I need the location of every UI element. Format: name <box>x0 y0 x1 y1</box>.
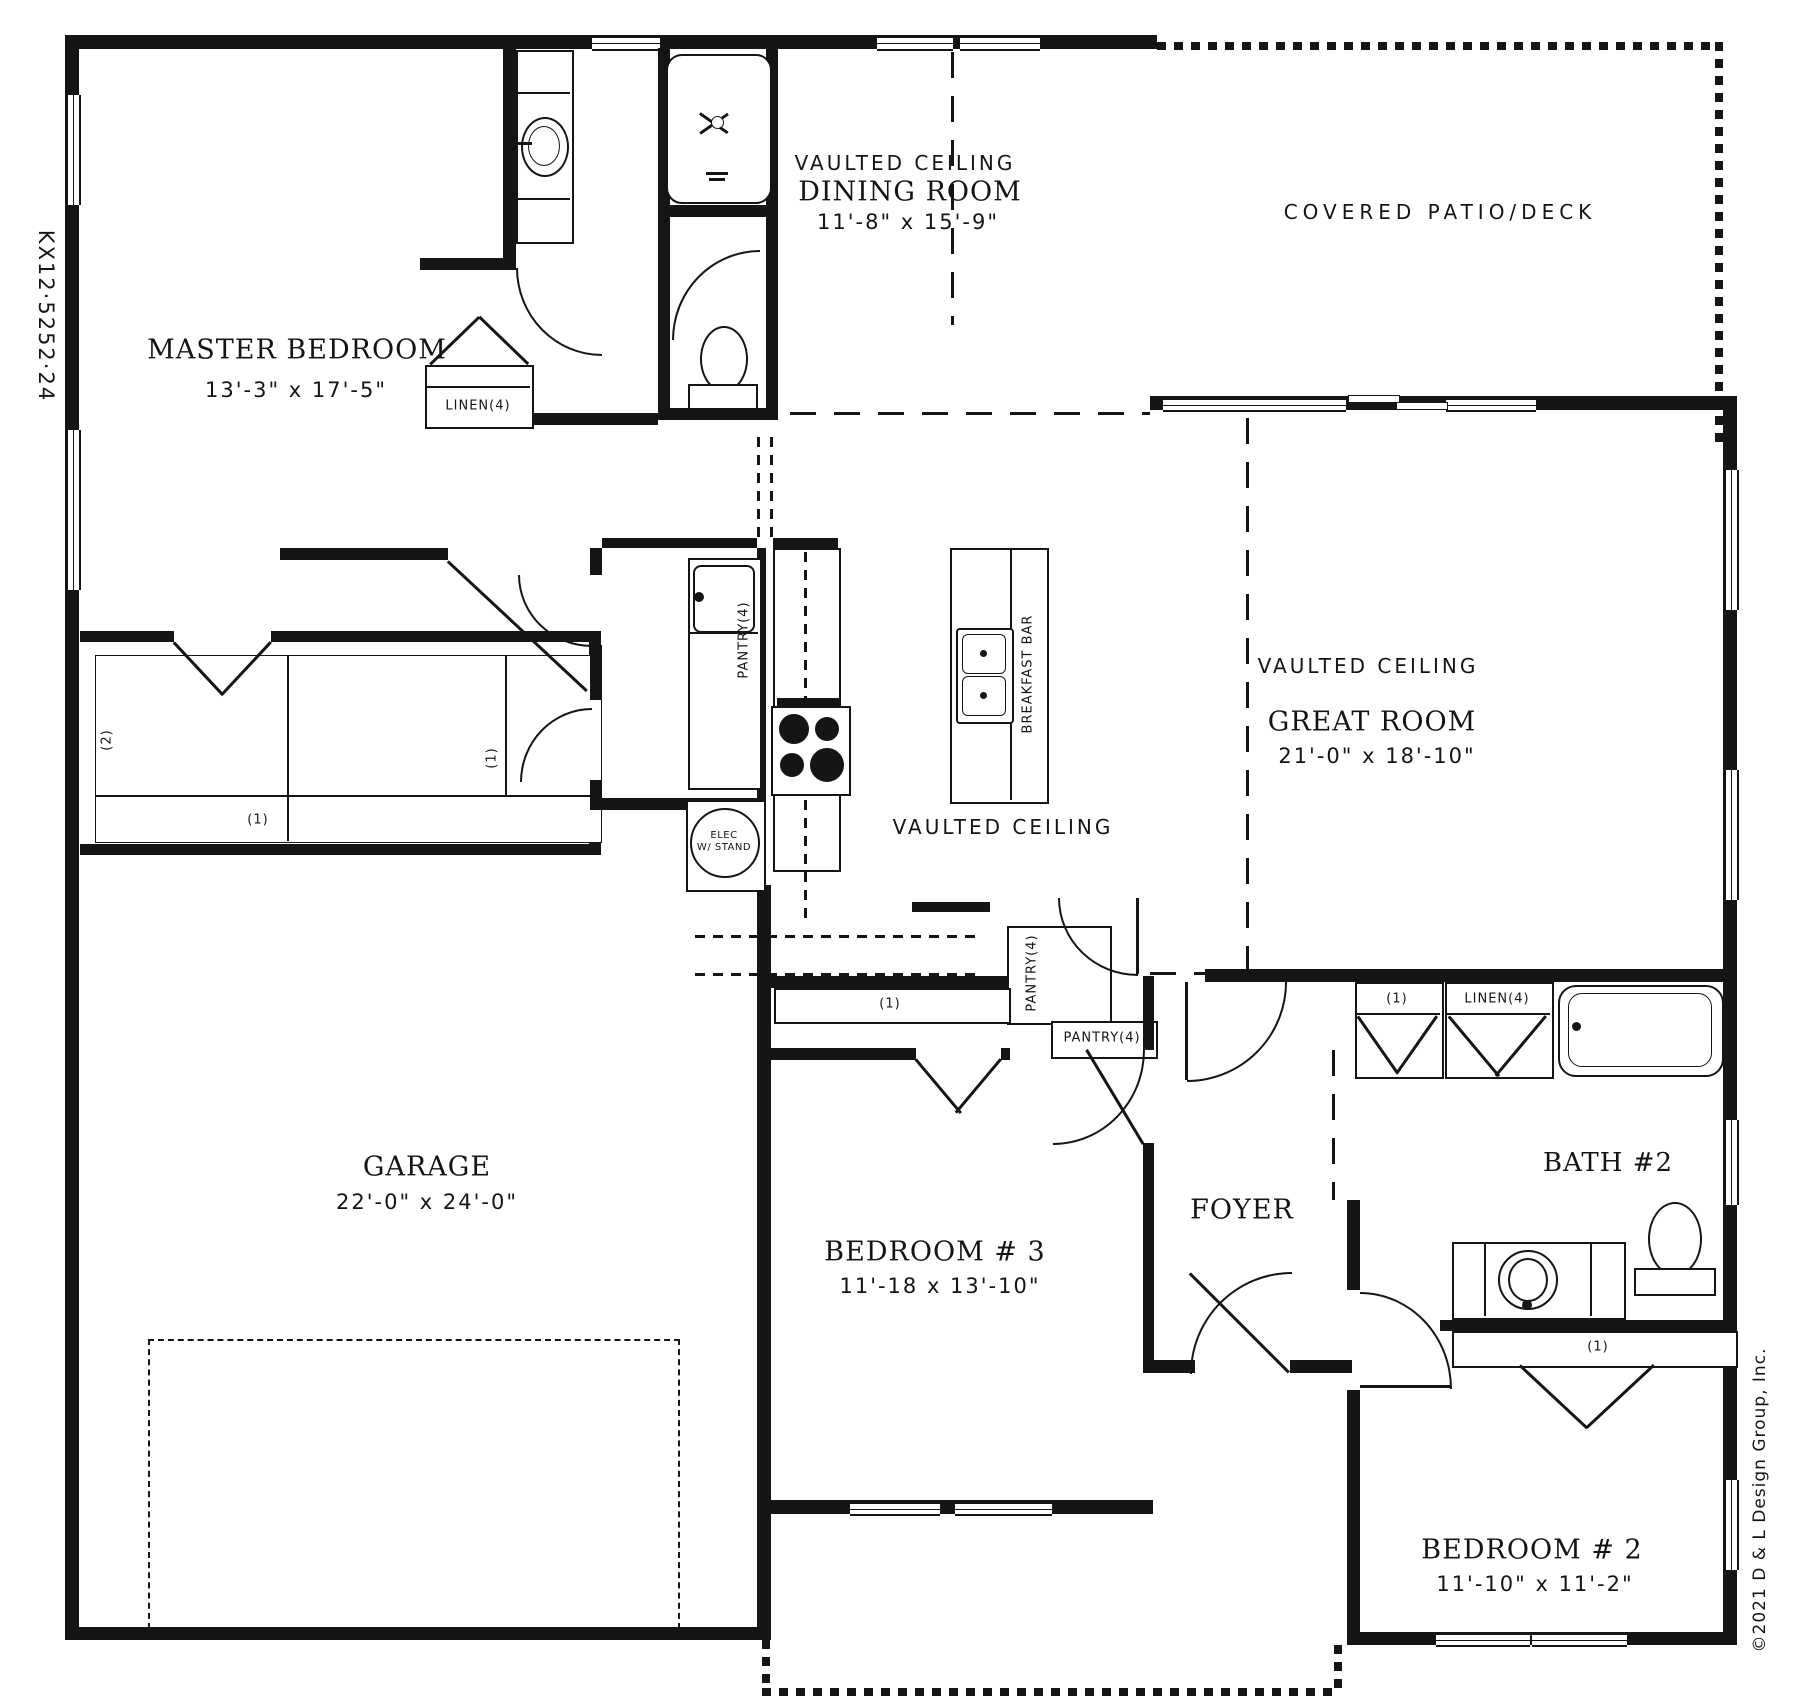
window-master-bath <box>592 36 660 51</box>
elec-line1: ELEC <box>710 830 737 841</box>
porch-dotted-bottom <box>762 1688 1340 1696</box>
window-dining-1 <box>877 36 953 51</box>
window-bedroom2-bottom-2 <box>1532 1633 1627 1647</box>
bedroom2-bifold-icon <box>1586 1364 1655 1429</box>
porch-dotted-right <box>1334 1645 1342 1688</box>
shower-icon <box>666 54 772 204</box>
wall-closet-top <box>80 631 174 642</box>
bedroom3-bifold-icon <box>955 1058 1002 1113</box>
closet-shelf-line <box>1445 1013 1550 1015</box>
closet-shelf-line <box>505 655 507 795</box>
toilet-tank-icon <box>1634 1268 1716 1296</box>
window-bedroom2-bottom-1 <box>1436 1633 1530 1647</box>
closet-shelf-code: (1) <box>247 813 268 828</box>
wall-bedroom2-west <box>1347 1390 1360 1645</box>
bath2-title: BATH #2 <box>1543 1148 1673 1178</box>
bath2-door-arc <box>1187 982 1287 1082</box>
master-bedroom-dims: 13'-3" x 17'-5" <box>205 378 387 402</box>
bedroom2-door-arc <box>1360 1292 1452 1389</box>
window-greatroom-right-2 <box>1724 770 1739 900</box>
bedroom3-title: BEDROOM # 3 <box>824 1237 1045 1268</box>
bedroom2-door-leaf <box>1360 1385 1450 1388</box>
counter-appliance-bar <box>912 902 990 912</box>
wall-mudhall <box>590 548 602 575</box>
garage-dims: 22'-0" x 24'-0" <box>336 1190 518 1214</box>
faucet-icon <box>694 592 704 602</box>
patio-slider-door <box>1348 395 1400 403</box>
bath2-door-leaf <box>1185 982 1188 1080</box>
toilet-tank-icon <box>688 384 758 410</box>
plan-code-vertical: KX12·5252·24 <box>34 230 58 402</box>
closet-shelf-code: (1) <box>485 747 500 768</box>
linen-shelf-line <box>425 386 530 388</box>
garage-door-dashed <box>148 1339 680 1629</box>
tub-faucet-icon <box>1572 1022 1581 1031</box>
floor-plan-canvas: LINEN(4) MASTER BEDROOM 13'-3" x 17'-5" … <box>0 0 1800 1700</box>
garage-title: GARAGE <box>363 1152 491 1183</box>
breakfast-bar-label: BREAKFAST BAR <box>1021 615 1036 734</box>
wall-exterior-left <box>65 35 79 1640</box>
window-bedroom3-1 <box>850 1502 940 1516</box>
dining-dims: 11'-8" x 15'-9" <box>817 210 999 234</box>
patio-slider-door <box>1396 402 1448 410</box>
patio-title: COVERED PATIO/DECK <box>1284 200 1597 224</box>
stove-burner-icon <box>780 753 804 777</box>
wall-bedroom2-west <box>1347 1200 1360 1290</box>
bedroom3-door-arc <box>1053 1050 1145 1145</box>
wall-foyer-bottom <box>1143 1360 1195 1373</box>
bath-door-arc <box>516 268 602 356</box>
window-bath2-right <box>1724 1120 1739 1205</box>
wall-kitchen-top <box>602 538 757 548</box>
dining-vault-label: VAULTED CEILING <box>795 151 1016 175</box>
wall-bath2-top <box>1205 969 1737 982</box>
master-bedroom-title: MASTER BEDROOM <box>147 335 447 366</box>
closet-shelf-line <box>287 655 289 841</box>
wall-garage-right <box>757 885 771 1640</box>
wall-bath2-south <box>1440 1320 1737 1331</box>
wall-bed-bath-divider <box>420 258 505 270</box>
wc-door-arc <box>672 250 760 340</box>
wall-bath-left <box>503 48 516 270</box>
window-greatroom-patio-1 <box>1163 398 1346 412</box>
drain-icon <box>980 650 987 657</box>
shower-drain-icon <box>711 116 724 129</box>
stove-hood-bar <box>777 698 841 706</box>
shower-head-icon <box>706 172 728 175</box>
window-greatroom-right-1 <box>1724 470 1739 610</box>
window-bedroom3-2 <box>955 1502 1052 1516</box>
bath2-sink-bowl-icon <box>1508 1258 1548 1302</box>
porch-dotted-left <box>762 1640 770 1688</box>
shower-head-icon <box>709 178 725 181</box>
toilet-icon <box>1648 1202 1702 1276</box>
wall-mudhall <box>590 645 602 700</box>
faucet-icon <box>1522 1300 1532 1310</box>
closet-shelf-code: (1) <box>1587 1340 1608 1355</box>
bedroom3-bifold-icon <box>915 1058 962 1113</box>
upper-cabinet-dash <box>804 800 807 920</box>
window-master-left-1 <box>66 95 81 205</box>
wall-bedroom3-top <box>757 976 1010 988</box>
kitchen-vault-label: VAULTED CEILING <box>893 815 1114 839</box>
master-sink-bowl-icon <box>528 126 560 166</box>
upper-cabinet-dash <box>804 552 807 702</box>
greatroom-dims: 21'-0" x 18'-10" <box>1278 744 1475 768</box>
foyer-title: FOYER <box>1190 1195 1294 1226</box>
closet-shelf-code: (1) <box>879 997 900 1012</box>
foyer-ceiling-dash <box>1332 1050 1335 1200</box>
copyright-vertical: ©2021 D & L Design Group, Inc. <box>1750 1348 1770 1653</box>
wall-foyer-bottom <box>1290 1360 1352 1373</box>
vanity-divider <box>1484 1242 1486 1316</box>
patio-dotted-right <box>1715 42 1723 442</box>
closet-shelf-outline <box>95 655 602 843</box>
stove-burner-icon <box>815 717 839 741</box>
bedroom2-title: BEDROOM # 2 <box>1421 1535 1642 1566</box>
bathtub-inner-icon <box>1568 993 1712 1067</box>
greatroom-title: GREAT ROOM <box>1268 707 1476 738</box>
counter-dash <box>695 935 980 938</box>
wall-bedroom3-closet <box>1001 1048 1010 1060</box>
kitchen-cased-opening-dash <box>770 437 773 537</box>
hall-door-leaf <box>1136 898 1139 974</box>
linen-closet-master <box>425 365 534 429</box>
linen-label: LINEN(4) <box>445 399 510 414</box>
faucet-icon <box>518 142 532 145</box>
dining-title: DINING ROOM <box>798 177 1022 208</box>
hall-ceiling-dash <box>1150 972 1206 975</box>
patio-dotted-top <box>1157 42 1723 50</box>
wall-bedroom3-right <box>1143 1143 1154 1373</box>
vanity-divider <box>516 92 570 94</box>
greatroom-ceiling-dash <box>1246 418 1249 969</box>
closet-shelf-line <box>95 795 600 797</box>
vanity-divider <box>516 198 570 200</box>
window-bedroom2-right <box>1724 1480 1739 1570</box>
bedroom2-dims: 11'-10" x 11'-2" <box>1436 1572 1633 1596</box>
wall-bedroom3-closet <box>757 1048 916 1060</box>
linen-bifold-icon <box>478 316 529 365</box>
elec-line2: W/ STAND <box>697 842 751 853</box>
stove-burner-icon <box>810 748 844 782</box>
pantry-label-vertical: PANTRY(4) <box>737 601 752 678</box>
bedroom2-bifold-icon <box>1519 1364 1588 1429</box>
closet-shelf-line <box>1355 1013 1440 1015</box>
vanity-divider <box>1590 1242 1592 1316</box>
pantry-label-vertical-2: PANTRY(4) <box>1025 934 1040 1011</box>
window-dining-2 <box>960 36 1040 51</box>
wall-closet-bottom <box>80 844 601 855</box>
bedroom3-dims: 11'-18 x 13'-10" <box>839 1274 1040 1298</box>
window-greatroom-patio-2 <box>1446 398 1536 412</box>
kitchen-cased-opening-dash <box>757 437 760 537</box>
closet-shelf-code: (1) <box>1386 992 1407 1007</box>
closet-shelf-code: (2) <box>100 729 115 750</box>
elec-stand-label: ELECW/ STAND <box>697 830 751 854</box>
pantry-label-horizontal: PANTRY(4) <box>1063 1031 1140 1046</box>
wall-shower-divider <box>658 205 778 217</box>
wall-bedroom3-right <box>1143 976 1154 1050</box>
linen-label: LINEN(4) <box>1464 992 1529 1007</box>
wall-kitchen-top <box>773 538 838 548</box>
wall-vestibule-top <box>280 548 448 560</box>
window-master-left-2 <box>66 430 81 590</box>
wall-mudhall <box>590 780 602 810</box>
dining-ceiling-dash <box>790 412 1150 415</box>
drain-icon <box>980 692 987 699</box>
greatroom-vault-label: VAULTED CEILING <box>1258 654 1479 678</box>
wall-hall-top <box>530 413 658 425</box>
stove-burner-icon <box>779 714 809 744</box>
